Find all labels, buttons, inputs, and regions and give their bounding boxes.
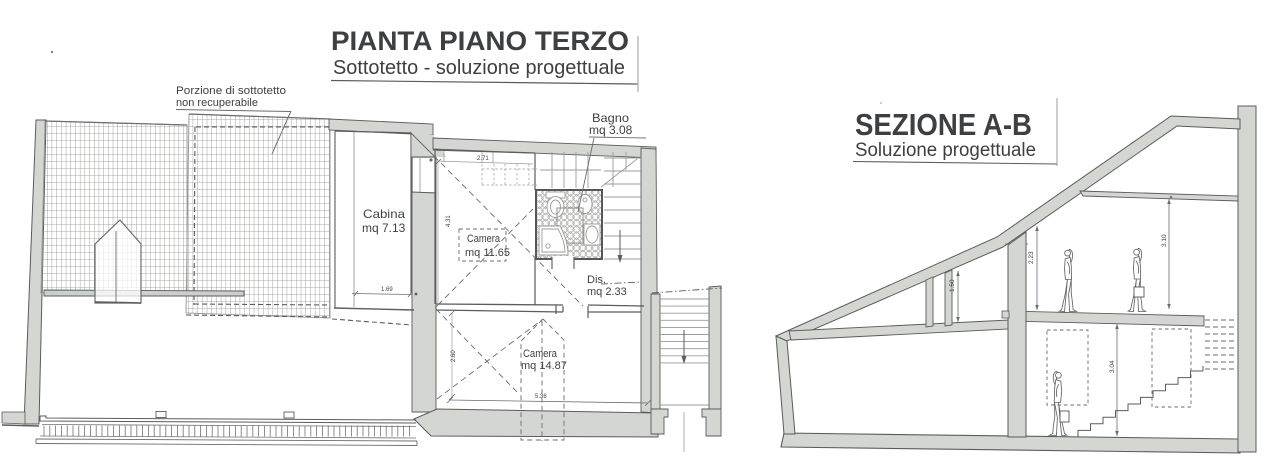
svg-text:3.10: 3.10 bbox=[1161, 234, 1168, 247]
svg-text:2.23: 2.23 bbox=[1028, 251, 1035, 264]
svg-text:mq 2.33: mq 2.33 bbox=[587, 286, 627, 298]
svg-text:Camera: Camera bbox=[467, 233, 501, 245]
svg-text:Camera: Camera bbox=[523, 348, 558, 360]
svg-text:1.69: 1.69 bbox=[381, 287, 393, 293]
svg-text:3.04: 3.04 bbox=[1109, 360, 1116, 373]
svg-text:mq 7.13: mq 7.13 bbox=[362, 221, 406, 235]
svg-text:PIANTA PIANO TERZO: PIANTA PIANO TERZO bbox=[331, 26, 629, 56]
svg-text:Porzione di sottotetto: Porzione di sottotetto bbox=[176, 85, 286, 97]
svg-text:mq 11.65: mq 11.65 bbox=[465, 247, 510, 259]
svg-text:Cabina: Cabina bbox=[363, 207, 405, 221]
svg-text:4.31: 4.31 bbox=[446, 215, 452, 227]
svg-text:2.60: 2.60 bbox=[451, 350, 457, 362]
svg-text:Dis.: Dis. bbox=[587, 274, 606, 286]
svg-text:mq 3.08: mq 3.08 bbox=[589, 123, 633, 137]
svg-text:non recuperabile: non recuperabile bbox=[176, 97, 258, 109]
svg-text:5.36: 5.36 bbox=[535, 394, 547, 400]
svg-text:mq 14.87: mq 14.87 bbox=[521, 360, 567, 372]
svg-text:SEZIONE A-B: SEZIONE A-B bbox=[855, 107, 1032, 142]
svg-text:Soluzione progettuale: Soluzione progettuale bbox=[855, 140, 1036, 161]
svg-text:1.50: 1.50 bbox=[949, 279, 956, 292]
svg-text:Sottotetto - soluzione progett: Sottotetto - soluzione progettuale bbox=[333, 57, 625, 79]
svg-text:2.71: 2.71 bbox=[477, 156, 489, 162]
